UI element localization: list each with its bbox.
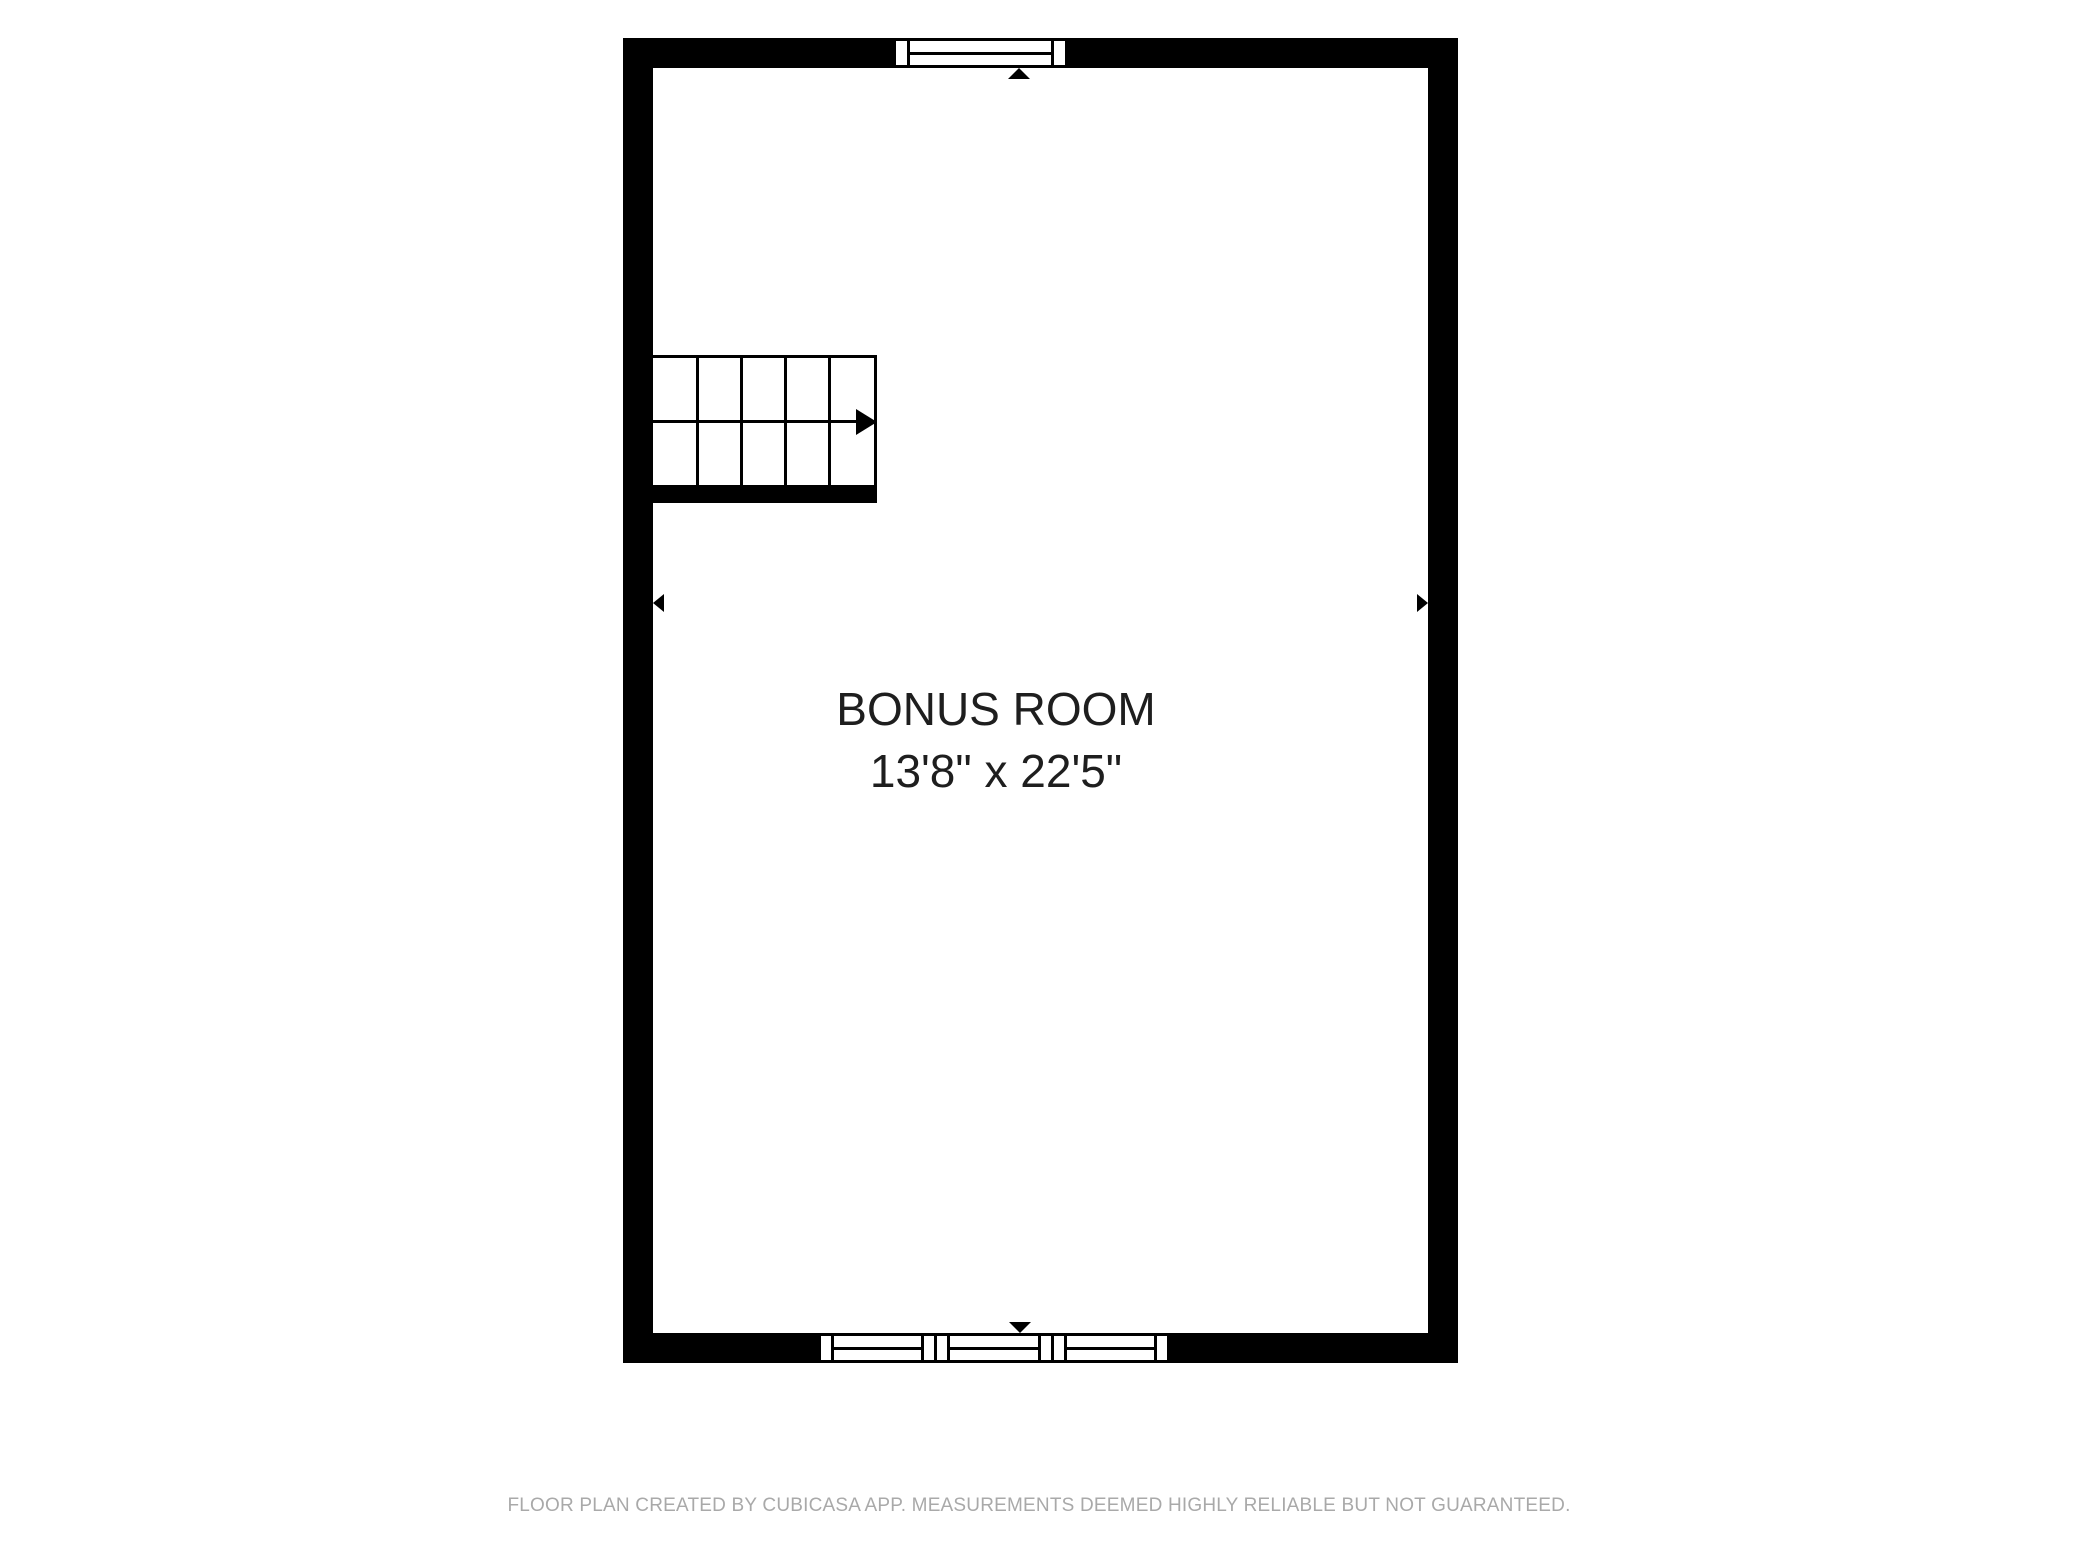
stair-step-divider — [696, 358, 699, 485]
room-dimensions: 13'8" x 22'5" — [836, 740, 1155, 802]
window-pane — [950, 1336, 1040, 1360]
wall-marker-top-icon — [1008, 68, 1030, 79]
window-pane — [910, 41, 1054, 65]
stair-run-line — [653, 420, 856, 423]
floorplan-room-outline: BONUS ROOM 13'8" x 22'5" — [623, 38, 1458, 1363]
window-frame-cap — [896, 41, 910, 65]
room-label: BONUS ROOM 13'8" x 22'5" — [836, 678, 1155, 802]
wall-marker-bottom-icon — [1009, 1322, 1031, 1333]
window-frame-cap — [821, 1336, 834, 1360]
stair-step-divider — [740, 358, 743, 485]
window-glass-line — [834, 1347, 921, 1350]
disclaimer-text: FLOOR PLAN CREATED BY CUBICASA APP. MEAS… — [507, 1494, 1570, 1518]
wall-marker-left-icon — [653, 594, 664, 612]
stair-step-divider — [828, 358, 831, 485]
window-top-wall — [893, 38, 1068, 68]
wall-marker-right-icon — [1417, 594, 1428, 612]
window-frame-cap — [1157, 1336, 1167, 1360]
window-glass-line — [1067, 1347, 1154, 1350]
window-bottom-wall — [818, 1333, 1170, 1363]
stair-step-divider — [784, 358, 787, 485]
stair-direction-arrow-icon — [856, 409, 877, 435]
window-glass-line — [950, 1347, 1037, 1350]
window-frame-cap — [1041, 1336, 1054, 1360]
window-frame-cap — [937, 1336, 950, 1360]
stair-base-wall — [653, 485, 877, 503]
stair-steps — [653, 355, 877, 485]
window-frame-cap — [1054, 1336, 1067, 1360]
window-pane — [1067, 1336, 1157, 1360]
window-glass-line — [910, 52, 1051, 55]
window-pane — [834, 1336, 924, 1360]
staircase — [653, 355, 877, 503]
window-frame-cap — [1054, 41, 1065, 65]
floorplan-page: BONUS ROOM 13'8" x 22'5" FLOOR PLAN CREA… — [0, 0, 2080, 1560]
window-frame-cap — [924, 1336, 937, 1360]
room-name: BONUS ROOM — [836, 678, 1155, 740]
